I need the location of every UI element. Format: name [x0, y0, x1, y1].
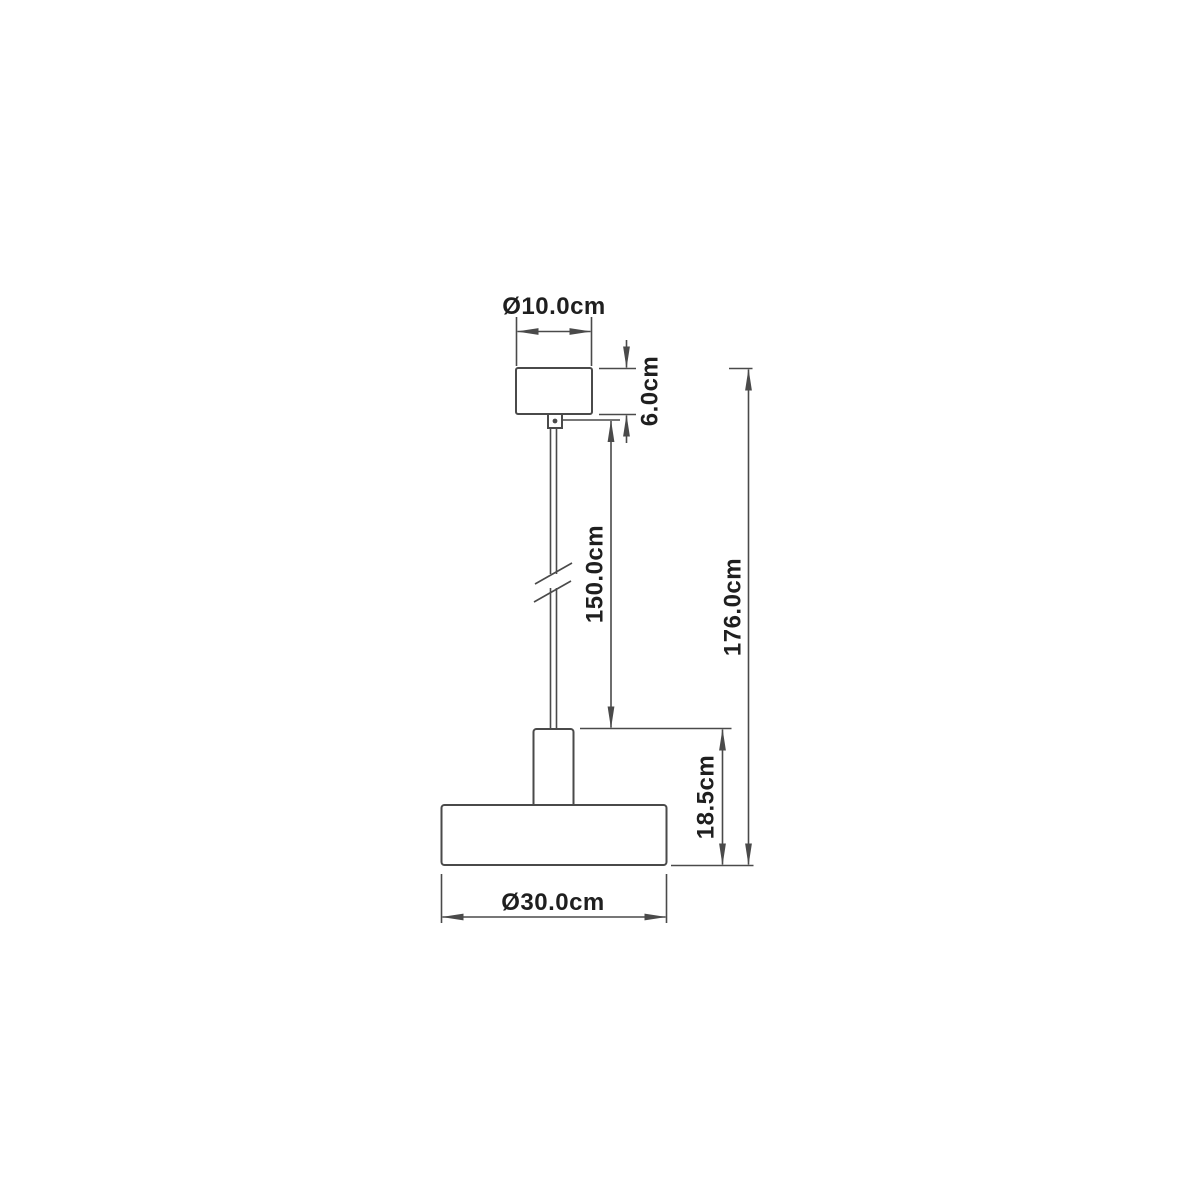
canopy-outline [516, 368, 592, 414]
label-total-height: 176.0cm [720, 558, 747, 656]
label-canopy-diameter: Ø10.0cm [502, 293, 606, 320]
label-canopy-height: 6.0cm [637, 356, 664, 427]
label-shade-diameter: Ø30.0cm [501, 889, 605, 916]
shade-outline [442, 805, 667, 865]
label-cable-length: 150.0cm [582, 525, 609, 623]
break-slash-lower [534, 581, 571, 602]
label-fixture-height: 18.5cm [693, 755, 720, 839]
suspension-cable [534, 428, 572, 730]
break-slash-upper [535, 563, 572, 584]
diagram-svg: Ø10.0cm 6.0cm 150.0cm 176.0cm 18.5cm Ø30… [0, 0, 1200, 1200]
connector-screw-dot [553, 419, 558, 424]
pendant-lamp-dimension-diagram: Ø10.0cm 6.0cm 150.0cm 176.0cm 18.5cm Ø30… [0, 0, 1200, 1200]
lamp-outline-group [442, 368, 667, 865]
socket-stem-outline [534, 729, 574, 807]
